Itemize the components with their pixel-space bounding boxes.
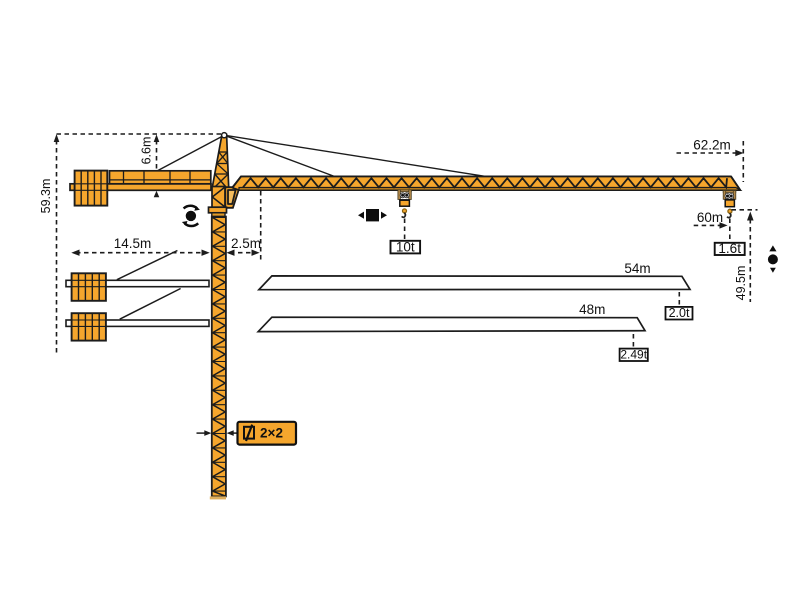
svg-text:62.2m: 62.2m bbox=[693, 138, 731, 153]
svg-text:2.0t: 2.0t bbox=[669, 306, 690, 320]
svg-text:1.6t: 1.6t bbox=[718, 241, 741, 256]
svg-text:59.3m: 59.3m bbox=[39, 179, 53, 214]
svg-text:10t: 10t bbox=[396, 240, 415, 255]
svg-text:2.5m: 2.5m bbox=[231, 236, 261, 251]
svg-text:49.5m: 49.5m bbox=[734, 266, 748, 301]
svg-text:54m: 54m bbox=[624, 261, 650, 276]
svg-text:2×2: 2×2 bbox=[260, 426, 283, 441]
svg-text:14.5m: 14.5m bbox=[114, 236, 152, 251]
svg-text:60m: 60m bbox=[697, 210, 723, 225]
svg-text:48m: 48m bbox=[579, 302, 605, 317]
svg-text:6.6m: 6.6m bbox=[140, 137, 154, 165]
svg-text:2.49t: 2.49t bbox=[620, 348, 647, 362]
